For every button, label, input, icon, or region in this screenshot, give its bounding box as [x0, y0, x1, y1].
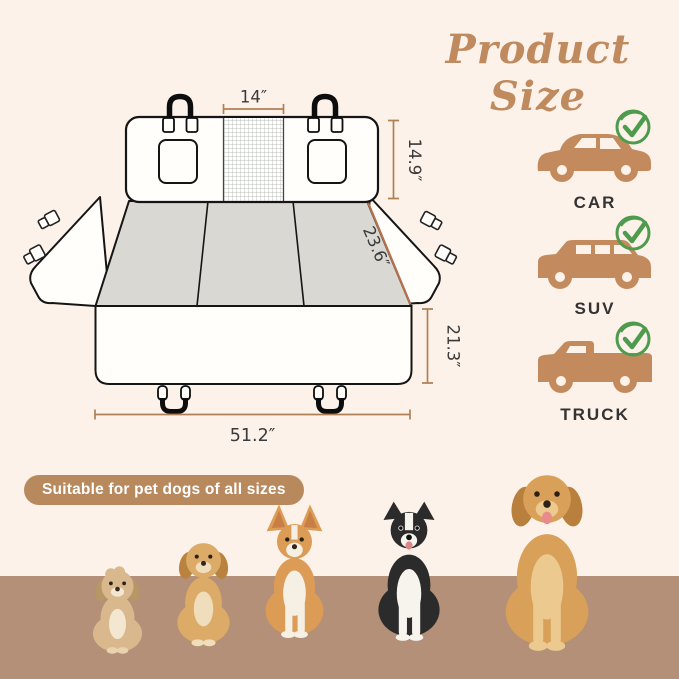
vehicle-item-car: CAR: [528, 106, 662, 213]
dim-total-width: 51.2″: [230, 426, 276, 446]
buckle-tab-icon: [435, 244, 459, 265]
golden-retriever-illustration: [478, 460, 616, 656]
truck-icon: [528, 318, 662, 400]
dim-back-height: 14.9″: [405, 139, 424, 182]
buckle-tab-icon: [37, 210, 60, 230]
vehicle-label-car: CAR: [528, 193, 662, 213]
dim-mesh-width: 14″: [240, 88, 267, 107]
seat-cover-dimension-diagram: 14″ 14.9″ 23.6″ 21.3″ 51.2″: [0, 0, 470, 460]
small-fluffy-puppy-illustration: [75, 558, 160, 656]
check-icon: [617, 323, 649, 355]
left-side-flap-shape: [22, 197, 110, 307]
vehicle-item-suv: SUV: [528, 212, 662, 319]
check-icon: [617, 217, 649, 249]
vehicle-label-truck: TRUCK: [528, 405, 662, 425]
right-window-shape: [308, 140, 346, 183]
seat-anchor-strap-icon: [314, 386, 346, 412]
seat-surface-shape: [96, 201, 412, 306]
suv-icon: [528, 212, 662, 294]
product-size-infographic: Product Size: [0, 0, 679, 679]
vehicle-label-suv: SUV: [528, 299, 662, 319]
left-window-shape: [159, 140, 197, 183]
border-collie-illustration: [358, 486, 460, 656]
seat-anchor-strap-icon: [158, 386, 190, 412]
golden-puppy-illustration: [158, 528, 250, 654]
dim-front-height: 21.3″: [444, 325, 463, 368]
front-drop-panel-shape: [96, 306, 412, 384]
check-icon: [617, 111, 649, 143]
buckle-tab-icon: [420, 211, 443, 231]
car-icon: [528, 106, 662, 188]
corgi-illustration: [246, 490, 344, 654]
vehicle-item-truck: TRUCK: [528, 318, 662, 425]
